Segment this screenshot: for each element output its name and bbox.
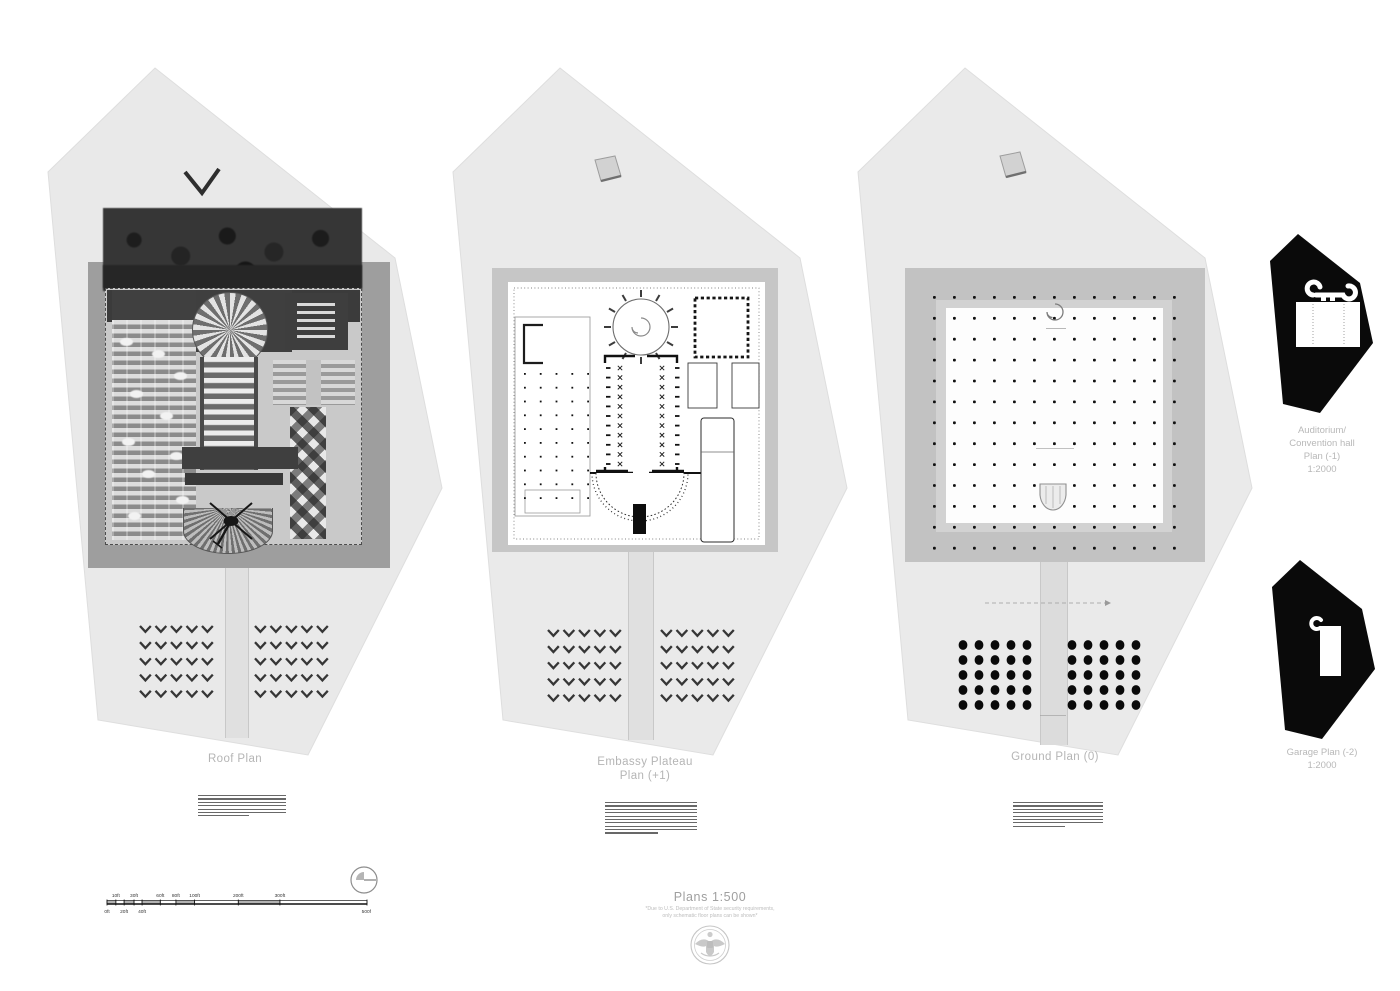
plan-title-ground: Ground Plan (0) (975, 750, 1135, 764)
label-line: Garage Plan (-2) (1252, 746, 1392, 759)
presentation-sheet: Roof Plan (0, 0, 1400, 991)
plan-caption-microtext (198, 795, 286, 819)
entrance-notch-icon (185, 169, 219, 193)
tree-allee (255, 626, 328, 697)
plan-caption-microtext (605, 802, 697, 836)
garage-plan (1320, 626, 1341, 676)
room-outline (525, 490, 580, 513)
sheet-title: Plans 1:500 (560, 890, 860, 904)
note-line1: *Due to U.S. Department of State securit… (560, 906, 860, 913)
tree-allee (140, 626, 213, 697)
security-note: *Due to U.S. Department of State securit… (560, 906, 860, 920)
hall-outline (688, 363, 717, 408)
side-label-auditorium: Auditorium/ Convention hall Plan (-1) 1:… (1252, 424, 1392, 476)
embassy-plan-linework (445, 60, 855, 770)
scale-tick-label: 200ft (233, 893, 244, 899)
label-line: Auditorium/ (1252, 424, 1392, 437)
sheet-footer: Plans 1:500 *Due to U.S. Department of S… (560, 890, 860, 973)
scale-tick-label: 100ft (189, 893, 200, 899)
label-line: Plan (-1) (1252, 450, 1392, 463)
stage-block (633, 504, 646, 534)
north-arrow-icon (346, 862, 382, 898)
scale-tick-label: 300ft (275, 893, 286, 899)
column-grid-dots (933, 296, 1176, 550)
label-line: 1:2000 (1252, 759, 1392, 772)
tree-allee (1068, 640, 1141, 710)
scale-tick-label: 80ft (172, 893, 181, 899)
side-plan-auditorium (1268, 232, 1380, 414)
plan-title-line1: Embassy Plateau (565, 755, 725, 769)
hall-outline (732, 363, 759, 408)
scale-tick-label: 20ft (120, 909, 129, 915)
scale-tick-label: 60ft (156, 893, 165, 899)
helicopter-icon (210, 503, 252, 548)
label-line: 1:2000 (1252, 463, 1392, 476)
scale-bar: 0ft10ft20ft30ft40ft60ft80ft100ft200ft300… (103, 884, 371, 918)
tree-allee (661, 630, 734, 701)
note-line2: only schematic floor plans can be shown* (560, 913, 860, 920)
tree-allee (959, 640, 1032, 710)
scale-tick-label: 10ft (112, 893, 121, 899)
ground-plan-linework (850, 60, 1260, 770)
roof-plan-overlay (40, 60, 450, 770)
site-parcel-roof: Roof Plan (40, 60, 450, 770)
scale-tick-label: 500ft (362, 909, 371, 915)
scale-tick-label: 0ft (104, 909, 110, 915)
scale-tick-label: 40ft (138, 909, 147, 915)
side-plan-garage (1270, 558, 1382, 740)
scale-tick-label: 30ft (130, 893, 139, 899)
section-arrow (1105, 600, 1111, 606)
site-parcel-plateau: Embassy Plateau Plan (+1) (445, 60, 855, 770)
right-wing (701, 418, 734, 542)
label-line: Convention hall (1252, 437, 1392, 450)
left-hall (515, 317, 590, 516)
plan-title-plateau: Embassy Plateau Plan (+1) (565, 755, 725, 783)
auditorium-plan (1296, 302, 1360, 347)
nave-column-marks (606, 366, 680, 466)
rotunda-plan (613, 299, 669, 355)
tree-allee (548, 630, 621, 701)
site-parcel-ground: Ground Plan (0) (850, 60, 1260, 770)
side-label-garage: Garage Plan (-2) 1:2000 (1252, 746, 1392, 772)
plan-title-roof: Roof Plan (155, 752, 315, 766)
courtyard-colonnade (695, 298, 748, 357)
plan-caption-microtext (1013, 802, 1103, 829)
plan-title-line2: Plan (+1) (565, 769, 725, 783)
great-seal-icon (687, 922, 733, 968)
